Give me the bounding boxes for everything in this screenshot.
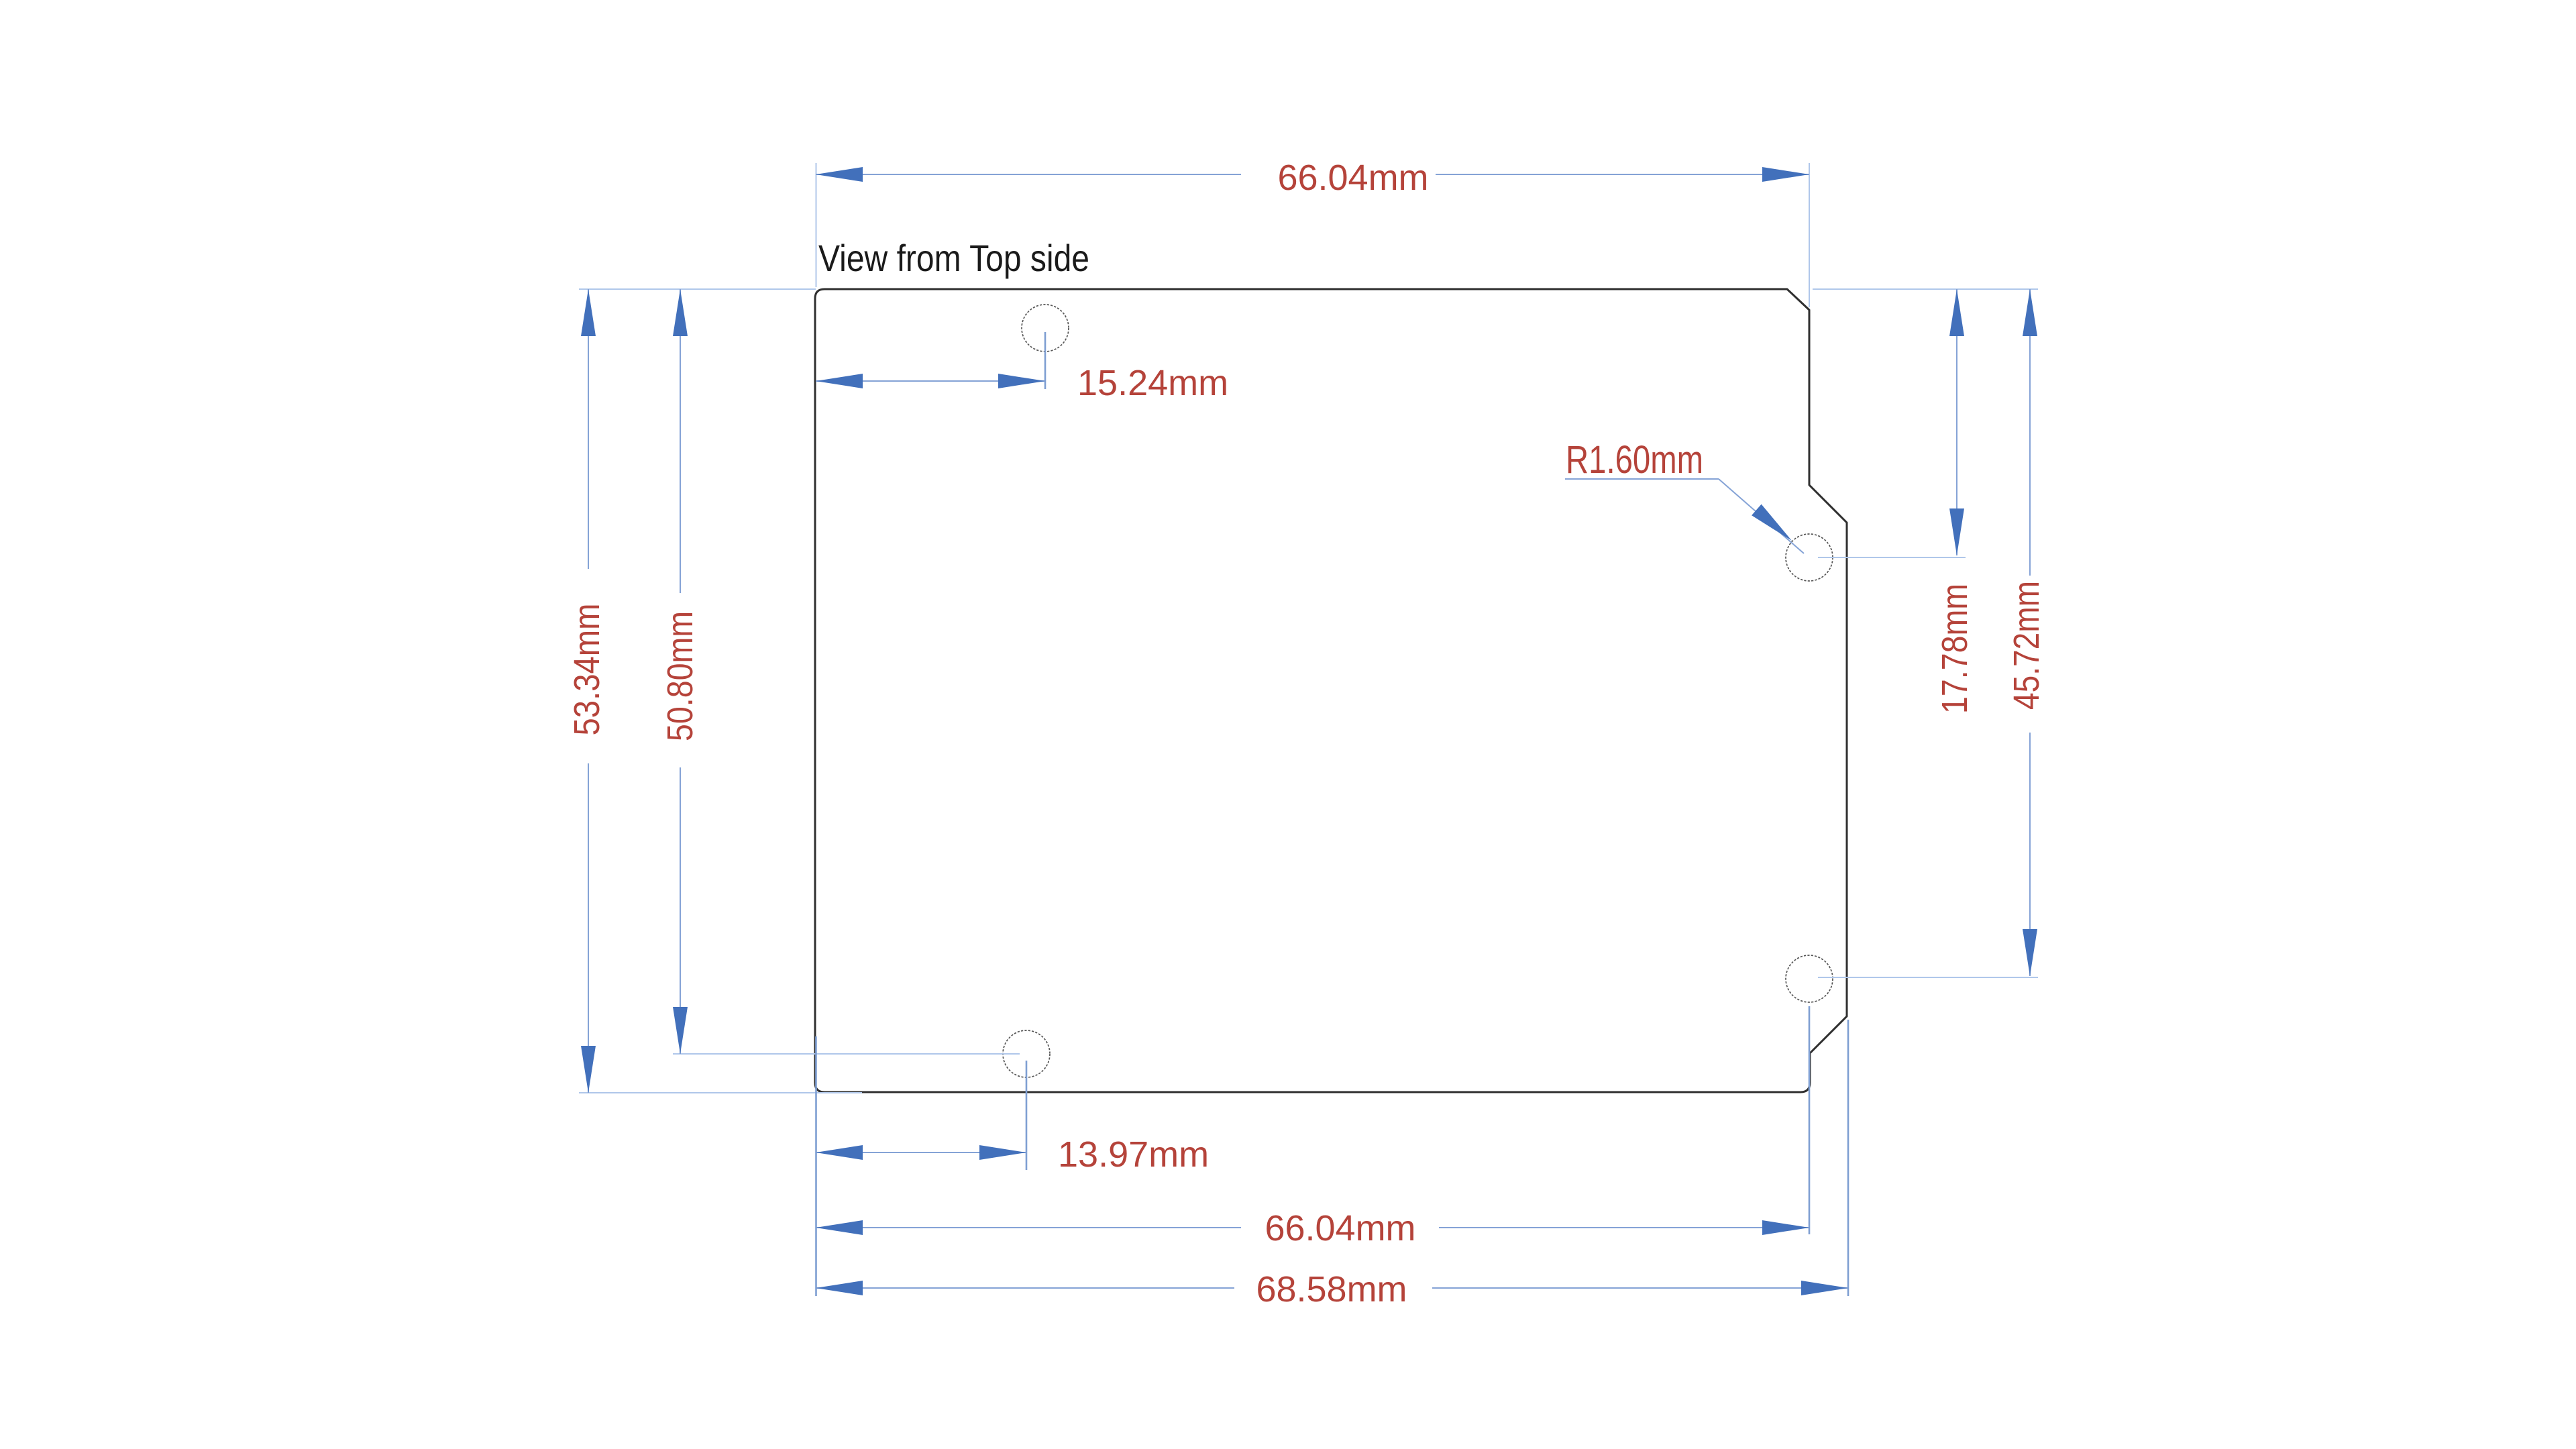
svg-text:50.80mm: 50.80mm bbox=[660, 611, 700, 741]
svg-text:R1.60mm: R1.60mm bbox=[1566, 438, 1703, 482]
svg-text:66.04mm: 66.04mm bbox=[1265, 1208, 1415, 1248]
svg-text:45.72mm: 45.72mm bbox=[2006, 581, 2047, 710]
svg-text:66.04mm: 66.04mm bbox=[1277, 158, 1428, 198]
svg-text:15.24mm: 15.24mm bbox=[1077, 363, 1228, 403]
svg-text:View from Top side: View from Top side bbox=[818, 237, 1089, 279]
svg-text:13.97mm: 13.97mm bbox=[1058, 1134, 1209, 1175]
svg-text:53.34mm: 53.34mm bbox=[567, 604, 607, 736]
svg-text:68.58mm: 68.58mm bbox=[1256, 1269, 1407, 1309]
svg-text:17.78mm: 17.78mm bbox=[1935, 584, 1975, 714]
